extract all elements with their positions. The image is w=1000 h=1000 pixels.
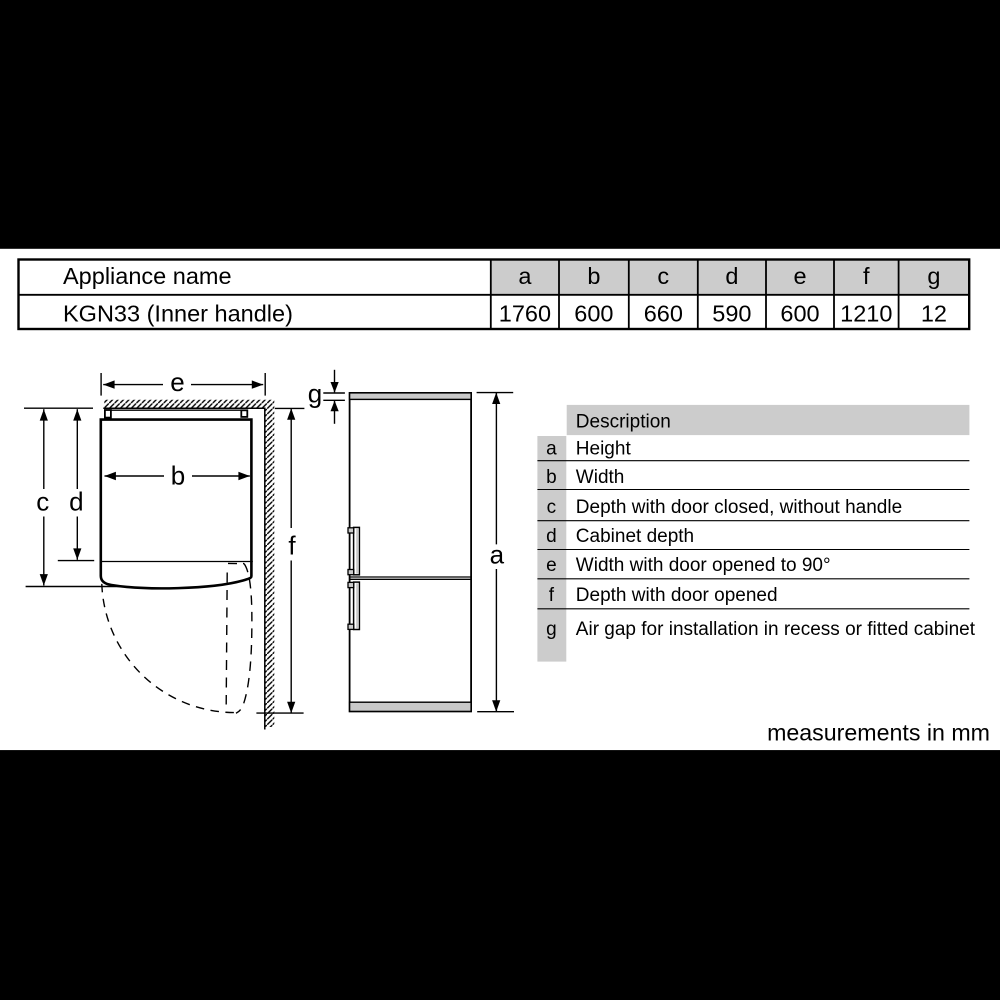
svg-text:g: g	[927, 263, 940, 289]
svg-text:e: e	[793, 263, 806, 289]
svg-text:c: c	[657, 263, 669, 289]
svg-text:660: 660	[644, 300, 683, 326]
svg-text:Appliance name: Appliance name	[63, 263, 232, 289]
svg-text:Width: Width	[576, 467, 625, 488]
svg-text:g: g	[308, 378, 322, 408]
svg-text:f: f	[549, 585, 555, 606]
svg-text:12: 12	[921, 300, 947, 326]
svg-text:g: g	[546, 619, 557, 640]
svg-text:Depth with door opened: Depth with door opened	[576, 585, 778, 606]
svg-text:b: b	[171, 460, 185, 490]
svg-text:a: a	[546, 439, 557, 460]
svg-text:d: d	[69, 486, 83, 516]
svg-text:1210: 1210	[840, 300, 892, 326]
svg-text:e: e	[170, 367, 184, 397]
svg-text:b: b	[587, 263, 600, 289]
svg-text:1760: 1760	[499, 300, 551, 326]
svg-text:e: e	[546, 555, 557, 576]
svg-text:c: c	[547, 497, 557, 518]
svg-text:590: 590	[712, 300, 751, 326]
svg-text:Cabinet depth: Cabinet depth	[576, 526, 694, 547]
svg-text:KGN33 (Inner handle): KGN33 (Inner handle)	[63, 300, 293, 326]
svg-text:Width with door opened to 90°: Width with door opened to 90°	[576, 555, 831, 576]
svg-text:Depth with door closed, withou: Depth with door closed, without handle	[576, 497, 902, 518]
svg-text:d: d	[725, 263, 738, 289]
svg-text:Air gap for installation in re: Air gap for installation in recess or fi…	[576, 619, 976, 640]
svg-text:d: d	[546, 526, 557, 547]
svg-text:measurements in mm: measurements in mm	[767, 720, 990, 746]
svg-text:Description: Description	[576, 412, 671, 433]
svg-text:Height: Height	[576, 439, 632, 460]
svg-text:600: 600	[574, 300, 613, 326]
svg-text:f: f	[863, 263, 870, 289]
svg-text:a: a	[518, 263, 532, 289]
svg-text:b: b	[546, 467, 557, 488]
svg-text:a: a	[490, 540, 505, 570]
svg-text:600: 600	[780, 300, 819, 326]
svg-text:c: c	[36, 486, 49, 516]
svg-text:f: f	[288, 530, 296, 560]
